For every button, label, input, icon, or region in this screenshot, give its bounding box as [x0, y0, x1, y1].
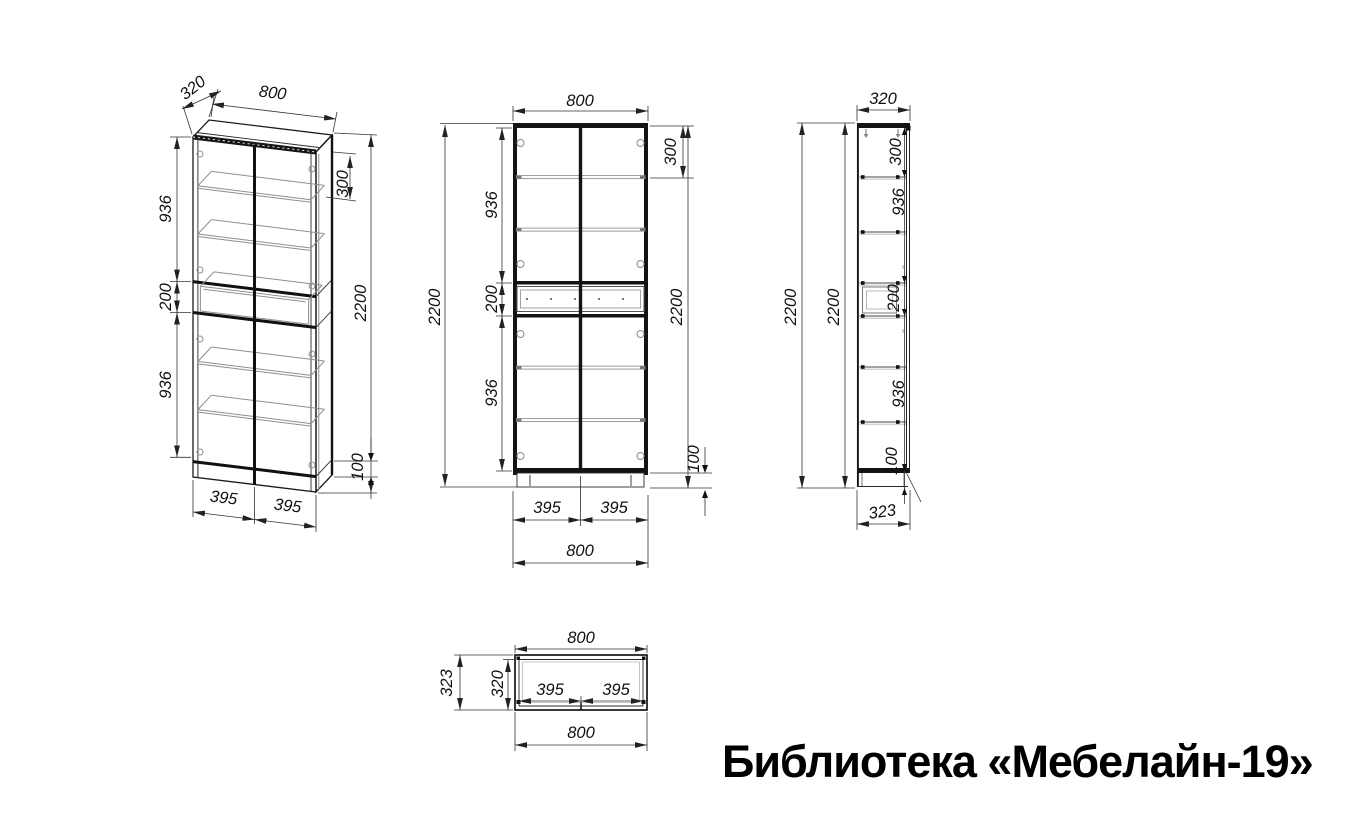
top-view: 800 323 320 395 395 800 [438, 629, 647, 751]
front-dim-lower: 936 [483, 378, 501, 406]
iso-dim-depth: 320 [177, 72, 210, 104]
top-dim-depth-inner: 320 [489, 669, 507, 697]
iso-dim-drawer: 200 [157, 282, 175, 311]
iso-dim-lower: 936 [157, 370, 175, 398]
iso-dim-half-right: 395 [273, 495, 303, 516]
front-dim-width-top: 800 [566, 92, 594, 110]
iso-dim-height: 2200 [352, 284, 370, 323]
front-dim-drawer: 200 [483, 284, 501, 313]
side-view: 320 2200 2200 300 936 200 936 100 323 [782, 90, 921, 530]
iso-dim-upper: 936 [157, 194, 175, 222]
side-dim-plinth: 100 [883, 446, 901, 474]
top-dim-width-bottom: 800 [567, 724, 595, 742]
iso-dim-plinth: 100 [349, 452, 367, 480]
side-dim-height-inner: 2200 [825, 288, 843, 327]
top-dim-half-right: 395 [602, 681, 630, 699]
drawing-title: Библиотека «Мебелайн-19» [722, 736, 1313, 788]
front-dim-half-right: 395 [600, 499, 628, 517]
front-dim-half-left: 395 [533, 499, 561, 517]
top-dim-depth-outer: 323 [438, 668, 456, 696]
front-dim-height-left: 2200 [426, 288, 444, 327]
side-dim-height-outer: 2200 [782, 288, 800, 327]
side-dim-depth-top: 320 [869, 90, 897, 108]
iso-dim-half-left: 395 [209, 487, 239, 508]
isometric-view: 320 800 936 200 936 300 2200 100 395 395 [157, 72, 378, 532]
side-dim-depth-bottom: 323 [867, 501, 898, 523]
front-dim-plinth: 100 [685, 444, 703, 472]
top-dim-width-top: 800 [567, 629, 595, 647]
side-dim-lower: 936 [890, 379, 908, 407]
front-dim-width-bottom: 800 [566, 542, 594, 560]
blueprint-canvas: 320 800 936 200 936 300 2200 100 395 395 [0, 0, 1353, 815]
top-dim-half-left: 395 [536, 681, 564, 699]
drawing-sheet: 320 800 936 200 936 300 2200 100 395 395 [0, 0, 1353, 815]
front-dim-top-section: 300 [662, 137, 680, 165]
front-view: 800 300 936 200 936 2200 2200 100 395 39… [426, 92, 712, 568]
side-dim-drawer: 200 [885, 283, 903, 312]
side-dim-upper: 936 [890, 187, 908, 215]
side-dim-top-section: 300 [887, 137, 905, 165]
iso-dim-width: 800 [258, 82, 288, 103]
front-dim-upper: 936 [483, 190, 501, 218]
front-dim-height-right: 2200 [668, 288, 686, 327]
iso-dim-top-section: 300 [334, 169, 352, 197]
